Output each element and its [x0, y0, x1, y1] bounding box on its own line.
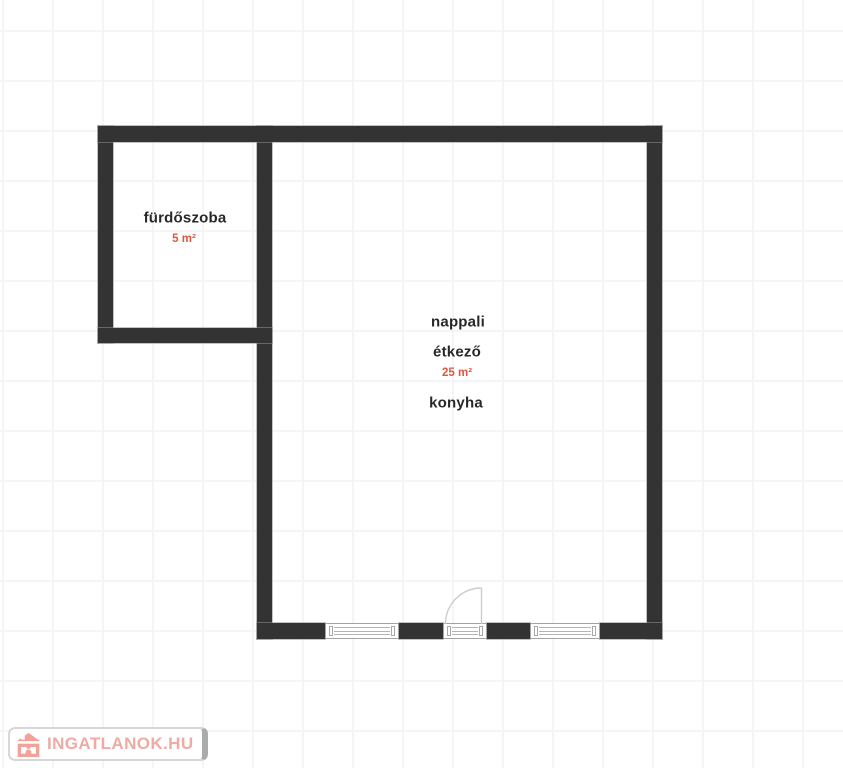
window-symbol-2 — [530, 623, 600, 639]
window-panes — [334, 627, 390, 635]
wall-divider — [257, 126, 272, 639]
room-label-living-line1: nappali — [431, 314, 485, 331]
watermark-text: INGATLANOK.HU — [47, 734, 194, 754]
window-mullion — [592, 626, 596, 636]
window-mullion — [534, 626, 538, 636]
door-swing-icon — [442, 585, 486, 627]
room-label-living-line3: konyha — [429, 395, 483, 412]
window-mullion — [479, 626, 483, 636]
wall-top — [98, 126, 662, 142]
window-panes — [539, 627, 591, 635]
area-label-living: 25 m² — [442, 367, 472, 379]
wall-bathroom-bottom — [98, 328, 272, 343]
wall-left — [98, 126, 113, 343]
wall-right — [647, 126, 662, 639]
window-mullion — [329, 626, 333, 636]
area-label-bathroom: 5 m² — [172, 233, 196, 245]
wall-bottom-segment-4 — [600, 623, 662, 639]
house-icon — [15, 732, 42, 757]
wall-bottom-segment-2 — [399, 623, 443, 639]
watermark-badge: INGATLANOK.HU — [8, 727, 208, 761]
wall-bottom-segment-1 — [257, 623, 325, 639]
floorplan-canvas: fürdőszoba 5 m² nappali étkező 25 m² kon… — [0, 0, 843, 768]
room-label-bathroom: fürdőszoba — [144, 210, 227, 227]
window-symbol-1 — [325, 623, 399, 639]
window-panes — [452, 627, 478, 635]
window-mullion — [391, 626, 395, 636]
wall-bottom-segment-3 — [487, 623, 530, 639]
window-mullion — [447, 626, 451, 636]
room-label-living-line2: étkező — [433, 344, 481, 361]
